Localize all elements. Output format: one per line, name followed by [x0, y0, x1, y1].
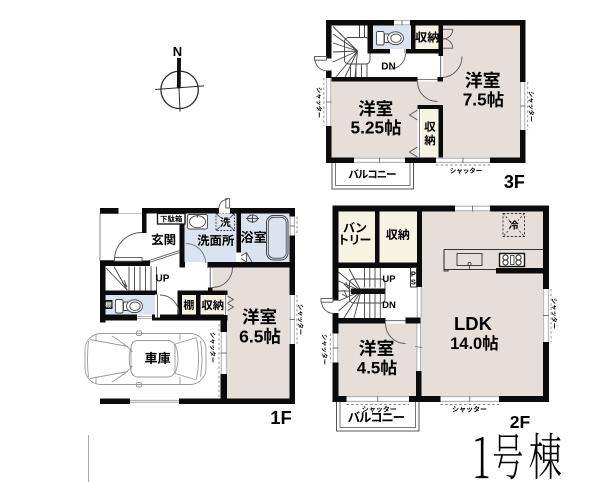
- svg-text:1F: 1F: [270, 407, 292, 428]
- svg-text:DN: DN: [381, 62, 395, 73]
- svg-text:UP: UP: [156, 274, 170, 285]
- svg-text:6.5: 6.5: [239, 326, 264, 346]
- svg-text:LDK: LDK: [454, 313, 493, 334]
- svg-text:DN: DN: [382, 300, 396, 311]
- svg-text:UP: UP: [382, 274, 396, 285]
- svg-text:3F: 3F: [504, 172, 525, 192]
- svg-text:4.5: 4.5: [357, 359, 380, 378]
- svg-text:N: N: [173, 44, 182, 59]
- svg-text:5.25: 5.25: [351, 118, 385, 138]
- svg-text:S: S: [411, 278, 416, 287]
- svg-text:7.5: 7.5: [463, 90, 487, 110]
- svg-text:14.0: 14.0: [450, 335, 482, 353]
- svg-text:2F: 2F: [510, 412, 531, 432]
